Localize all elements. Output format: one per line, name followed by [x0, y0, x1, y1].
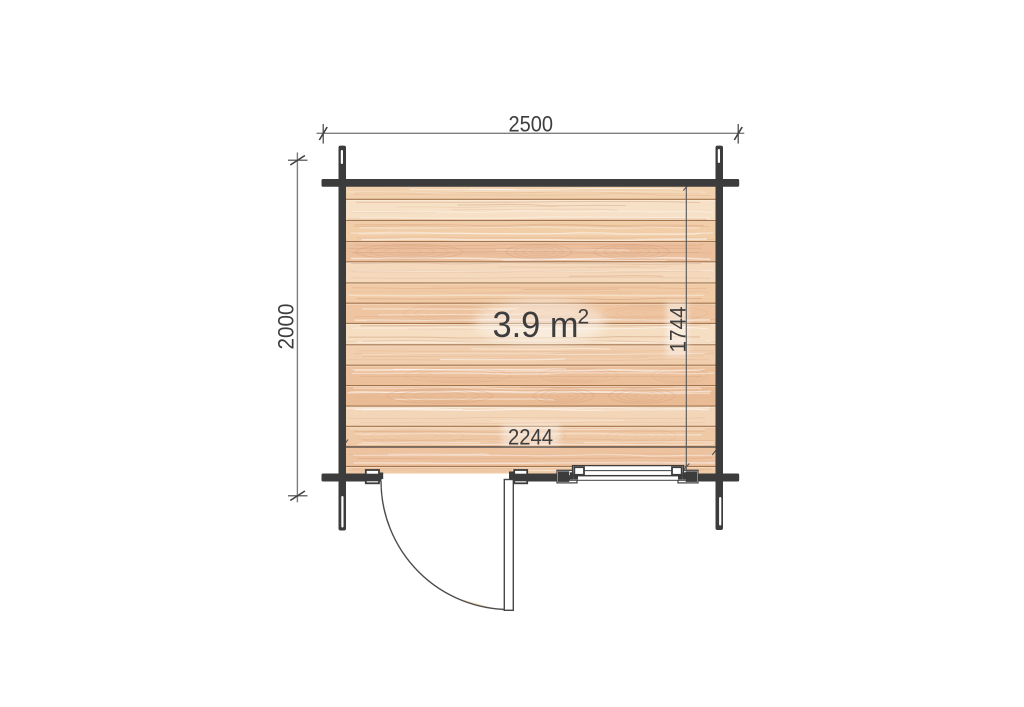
svg-text:1744: 1744 — [666, 307, 691, 353]
svg-text:2: 2 — [578, 306, 590, 329]
svg-text:2244: 2244 — [508, 424, 553, 449]
svg-text:3.9 m: 3.9 m — [493, 304, 579, 345]
svg-text:2000: 2000 — [274, 304, 299, 350]
svg-text:2500: 2500 — [509, 112, 554, 137]
